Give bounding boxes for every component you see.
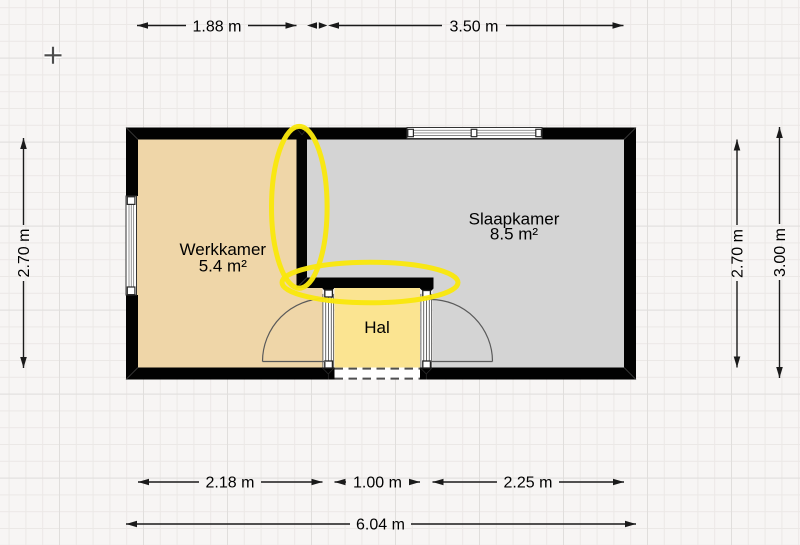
svg-text:2.70 m: 2.70 m xyxy=(730,229,747,278)
svg-text:2.18 m: 2.18 m xyxy=(206,475,255,492)
svg-text:5.4 m²: 5.4 m² xyxy=(199,257,248,276)
svg-text:2.25 m: 2.25 m xyxy=(504,475,553,492)
svg-text:1.88 m: 1.88 m xyxy=(193,18,242,35)
svg-text:8.5 m²: 8.5 m² xyxy=(490,225,539,244)
svg-text:6.04 m: 6.04 m xyxy=(356,517,405,534)
svg-text:Hal: Hal xyxy=(364,318,390,337)
svg-text:2.70 m: 2.70 m xyxy=(16,229,33,278)
svg-text:3.00 m: 3.00 m xyxy=(772,228,789,277)
svg-text:1.00 m: 1.00 m xyxy=(353,475,402,492)
svg-text:3.50 m: 3.50 m xyxy=(450,18,499,35)
